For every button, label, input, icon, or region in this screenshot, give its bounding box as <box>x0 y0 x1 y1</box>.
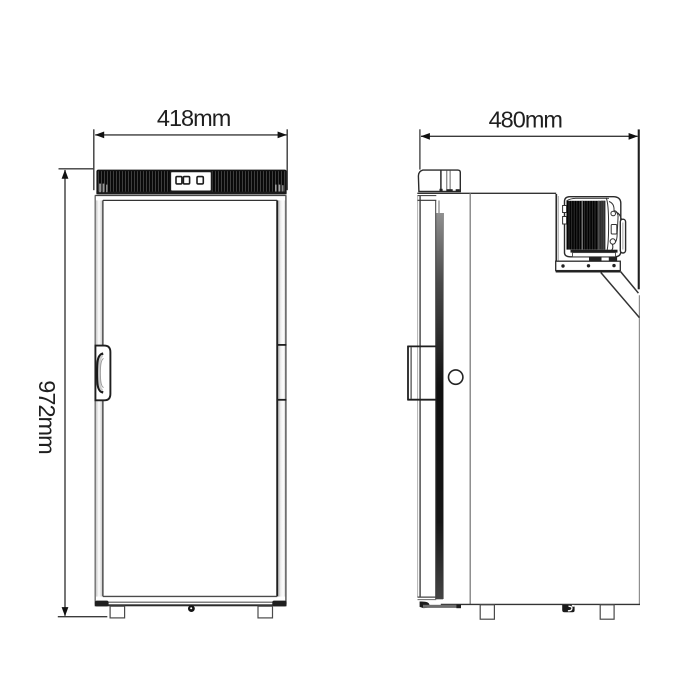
svg-text:480mm: 480mm <box>489 107 563 133</box>
svg-text:972mm: 972mm <box>34 380 60 454</box>
svg-text:418mm: 418mm <box>157 105 231 131</box>
